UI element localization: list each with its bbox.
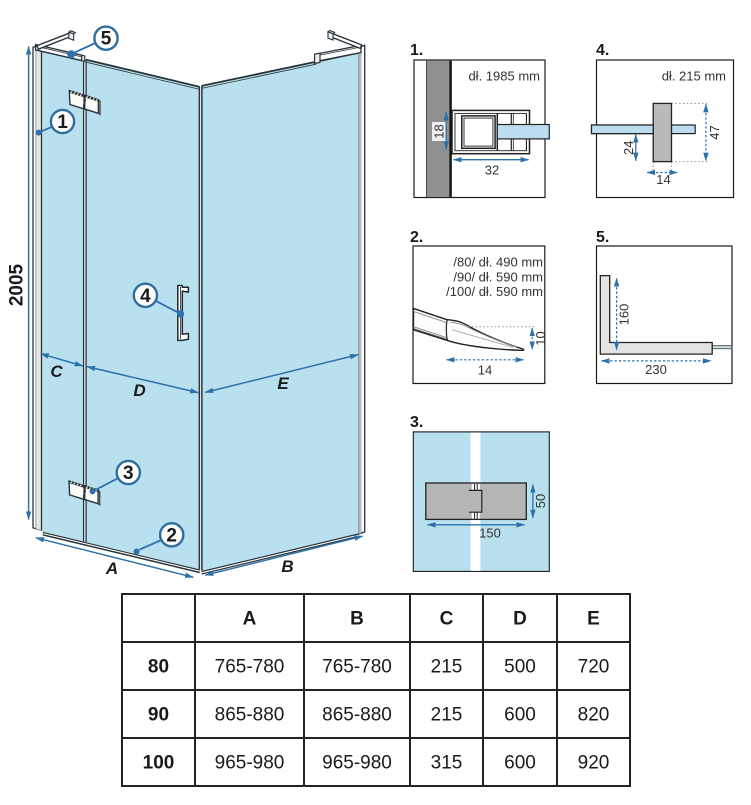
- svg-text:865-880: 865-880: [215, 705, 285, 726]
- svg-text:dł. 1985 mm: dł. 1985 mm: [468, 69, 540, 84]
- svg-text:24: 24: [621, 141, 636, 155]
- svg-text:14: 14: [656, 172, 670, 187]
- svg-text:500: 500: [504, 657, 536, 678]
- svg-text:3: 3: [123, 463, 134, 484]
- svg-text:47: 47: [707, 125, 722, 139]
- svg-text:215: 215: [431, 705, 463, 726]
- svg-text:E: E: [277, 374, 289, 393]
- svg-text:965-980: 965-980: [322, 753, 392, 774]
- svg-text:215: 215: [431, 657, 463, 678]
- svg-text:315: 315: [431, 753, 463, 774]
- svg-text:C: C: [50, 362, 63, 381]
- svg-text:18: 18: [432, 124, 447, 138]
- svg-text:3.: 3.: [410, 414, 423, 431]
- svg-text:4: 4: [140, 286, 151, 307]
- svg-text:600: 600: [504, 705, 536, 726]
- svg-text:600: 600: [504, 753, 536, 774]
- svg-text:/90/ dł. 590 mm: /90/ dł. 590 mm: [453, 269, 543, 284]
- svg-text:D: D: [513, 609, 527, 630]
- svg-text:2.: 2.: [410, 229, 423, 246]
- svg-text:820: 820: [578, 705, 610, 726]
- svg-text:80: 80: [148, 657, 169, 678]
- svg-text:100: 100: [143, 753, 175, 774]
- svg-text:965-980: 965-980: [215, 753, 285, 774]
- svg-text:765-780: 765-780: [215, 657, 285, 678]
- svg-text:C: C: [440, 609, 454, 630]
- svg-text:/100/ dł. 590 mm: /100/ dł. 590 mm: [446, 284, 543, 299]
- svg-text:920: 920: [578, 753, 610, 774]
- svg-text:A: A: [105, 559, 118, 578]
- svg-text:50: 50: [533, 494, 548, 508]
- svg-text:B: B: [350, 609, 364, 630]
- svg-text:/80/ dł. 490 mm: /80/ dł. 490 mm: [453, 255, 543, 270]
- svg-text:160: 160: [617, 304, 632, 326]
- svg-text:2005: 2005: [7, 263, 28, 306]
- svg-text:10: 10: [533, 331, 548, 345]
- svg-text:765-780: 765-780: [322, 657, 392, 678]
- svg-text:865-880: 865-880: [322, 705, 392, 726]
- svg-text:D: D: [133, 381, 145, 400]
- svg-text:2: 2: [166, 525, 177, 546]
- svg-text:B: B: [281, 557, 293, 576]
- svg-text:720: 720: [578, 657, 610, 678]
- svg-text:14: 14: [478, 363, 492, 378]
- svg-text:5.: 5.: [596, 229, 609, 246]
- svg-text:230: 230: [645, 362, 667, 377]
- svg-text:4.: 4.: [596, 42, 609, 59]
- svg-text:5: 5: [101, 29, 112, 50]
- svg-text:1.: 1.: [410, 42, 423, 59]
- svg-text:32: 32: [485, 163, 499, 178]
- svg-text:E: E: [587, 609, 600, 630]
- svg-text:1: 1: [57, 112, 68, 133]
- svg-text:dł. 215 mm: dł. 215 mm: [662, 69, 726, 84]
- svg-text:150: 150: [479, 525, 501, 540]
- svg-text:A: A: [243, 609, 257, 630]
- svg-text:90: 90: [148, 705, 169, 726]
